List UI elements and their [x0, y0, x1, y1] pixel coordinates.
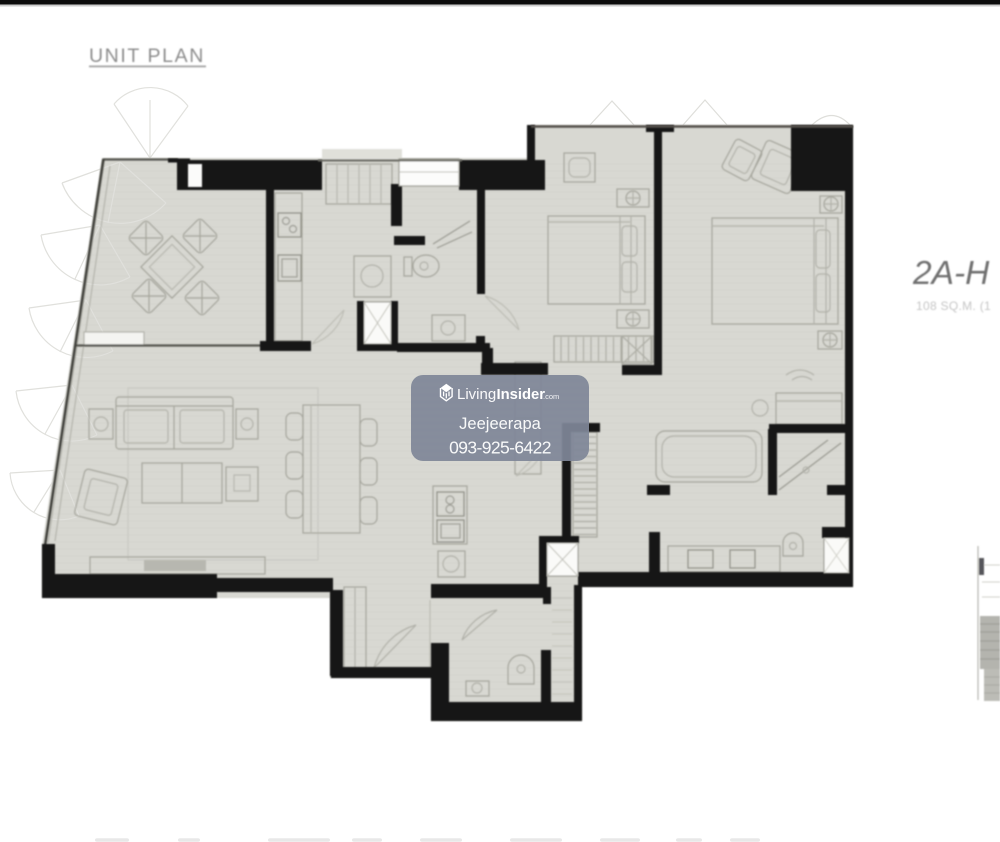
svg-text:UNIT PLAN: UNIT PLAN	[89, 45, 205, 67]
svg-text:.com: .com	[543, 392, 559, 401]
svg-text:Insider: Insider	[497, 387, 546, 403]
svg-text:Jeejeerapa: Jeejeerapa	[459, 415, 541, 433]
svg-text:093-925-6422: 093-925-6422	[449, 438, 551, 458]
svg-text:Living: Living	[457, 386, 496, 403]
svg-text:2A-H: 2A-H	[912, 255, 990, 292]
svg-text:108 SQ.M. (1: 108 SQ.M. (1	[916, 299, 991, 313]
